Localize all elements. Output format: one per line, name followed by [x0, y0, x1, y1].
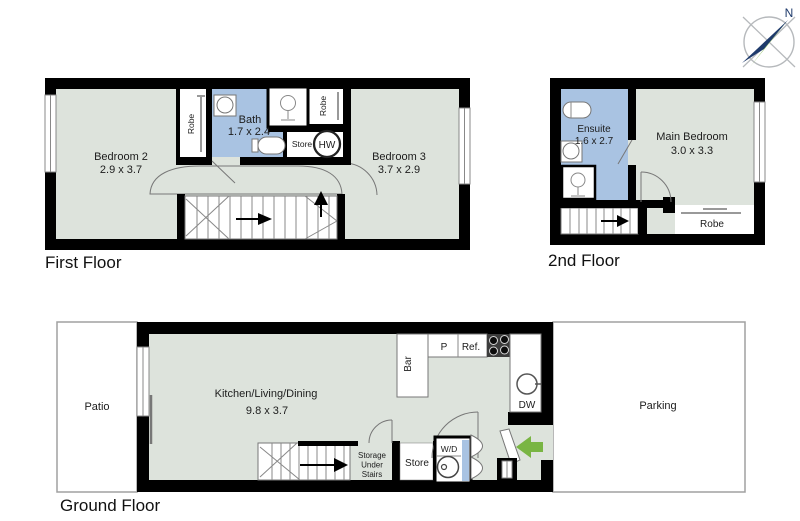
first-floor-stairs	[185, 191, 337, 239]
wall	[392, 441, 400, 480]
wall	[343, 89, 351, 165]
entry-sidelight-window	[497, 458, 517, 480]
shower	[268, 87, 308, 127]
dishwasher-label: DW	[519, 400, 536, 411]
toilet	[563, 102, 591, 118]
window	[754, 102, 765, 182]
wall	[508, 412, 553, 425]
landing-door-swings	[150, 166, 342, 194]
bedroom2-label: Bedroom 2	[94, 151, 148, 163]
first-floor-plan: Bedroom 2 2.9 x 3.7 Bedroom 3 3.7 x 2.9 …	[45, 78, 470, 272]
hw-label: HW	[319, 140, 336, 151]
bath-label: Bath	[239, 114, 262, 126]
washer-label: W/D	[441, 444, 458, 454]
compass-needle-green	[750, 20, 788, 67]
ground-floor-plan: Patio Parking Kitchen/Living/Dining 9.8 …	[57, 322, 745, 515]
wall	[298, 441, 358, 446]
second-floor-plan: Ensuite 1.6 x 2.7 Main Bedroom 3.0 x 3.3…	[548, 78, 765, 270]
bar-label: Bar	[403, 356, 414, 372]
window	[45, 95, 56, 172]
bedroom3-label: Bedroom 3	[372, 151, 426, 163]
patio-label: Patio	[84, 401, 109, 413]
wall	[628, 89, 636, 140]
store-label: Store	[405, 458, 429, 469]
compass: N	[742, 6, 795, 67]
storage-label-line1: Storage	[358, 451, 387, 460]
washing-machine	[438, 457, 459, 478]
pantry-label: P	[441, 342, 448, 353]
bedroom3-dims: 3.7 x 2.9	[378, 164, 420, 176]
robe-right-label: Robe	[318, 96, 328, 117]
wall	[240, 157, 351, 165]
main-bedroom-dims: 3.0 x 3.3	[671, 145, 713, 157]
wall	[550, 200, 675, 208]
wall	[137, 480, 553, 492]
shower	[562, 166, 595, 199]
wall	[177, 194, 185, 239]
wall	[663, 197, 675, 213]
store-label: Store	[292, 139, 313, 149]
ground-floor-title: Ground Floor	[60, 496, 160, 515]
wall	[541, 460, 553, 492]
storage-label-line3: Stairs	[362, 470, 382, 479]
kitchen-label: Kitchen/Living/Dining	[215, 388, 318, 400]
wall	[206, 89, 212, 157]
kitchen-sink	[517, 374, 537, 394]
second-floor-title: 2nd Floor	[548, 251, 620, 270]
wall	[541, 322, 553, 425]
storage-label-line2: Under	[361, 461, 383, 470]
main-bedroom-label: Main Bedroom	[656, 131, 728, 143]
first-floor-title: First Floor	[45, 253, 122, 272]
ensuite-dims: 1.6 x 2.7	[575, 136, 614, 147]
wall	[337, 194, 345, 239]
robe-left-label: Robe	[186, 114, 196, 135]
compass-north-label: N	[785, 6, 794, 20]
floorplan-image: N	[0, 0, 800, 521]
wall	[137, 322, 553, 334]
kitchen-dims: 9.8 x 3.7	[246, 405, 288, 417]
window	[459, 108, 470, 184]
ground-floor-stairs	[258, 443, 350, 480]
toilet	[258, 137, 285, 154]
fridge-label: Ref.	[462, 342, 480, 353]
parking-label: Parking	[639, 400, 676, 412]
bedroom2-dims: 2.9 x 3.7	[100, 164, 142, 176]
floorplan-page: N	[0, 0, 800, 521]
toilet-tank	[252, 139, 258, 152]
cooktop	[487, 334, 511, 357]
bath-dims: 1.7 x 2.4	[228, 126, 270, 138]
laundry-closet	[435, 435, 483, 483]
wall	[176, 157, 212, 165]
robe-label: Robe	[700, 219, 724, 230]
bath-sink	[217, 97, 233, 113]
wall	[638, 205, 647, 234]
wall	[176, 89, 180, 165]
ensuite-label: Ensuite	[577, 124, 611, 135]
